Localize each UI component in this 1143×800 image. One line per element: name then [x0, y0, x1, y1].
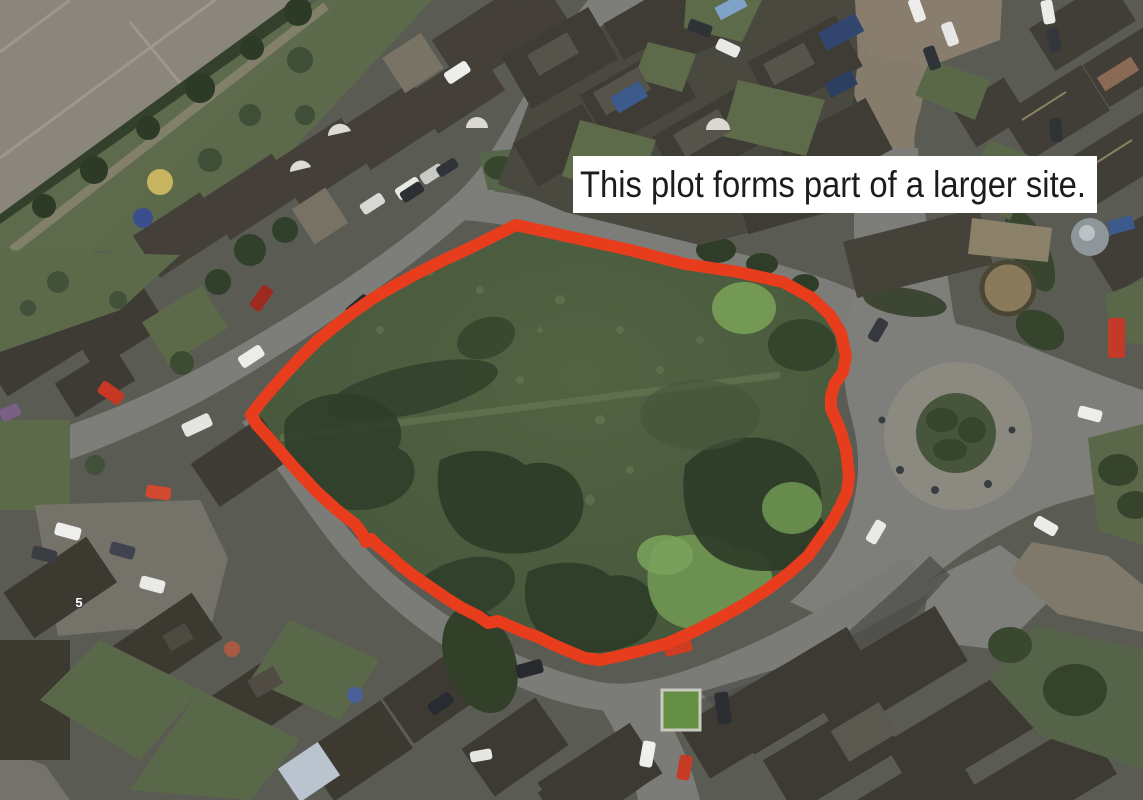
svg-text:This plot forms part of a larg: This plot forms part of a larger site.: [580, 164, 1086, 205]
svg-text:5: 5: [75, 595, 82, 610]
